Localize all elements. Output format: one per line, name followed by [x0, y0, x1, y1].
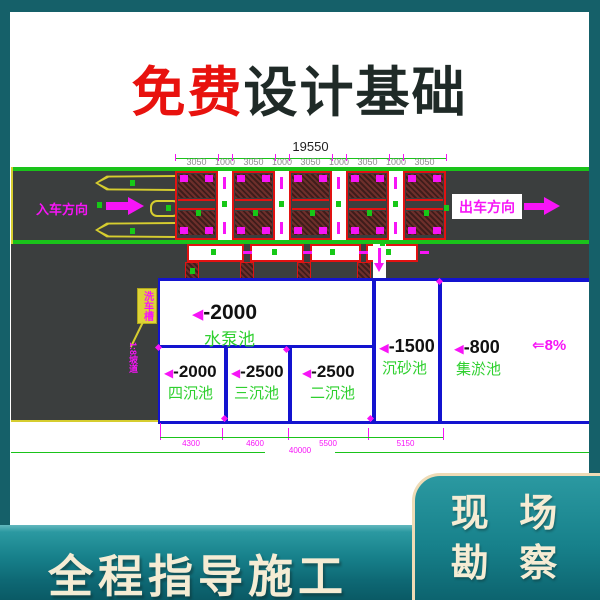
plant-mark	[222, 201, 227, 207]
inlet-arrow	[378, 248, 381, 263]
dim-tick	[288, 428, 289, 440]
bay-mid-strip	[235, 199, 272, 210]
bay-hatch-top	[235, 174, 272, 198]
apron-yellow-edge	[11, 420, 160, 422]
inlet-arrow-head	[374, 263, 384, 272]
bay-gap-channel	[332, 171, 346, 240]
nozzle-mark	[408, 175, 416, 182]
pool-depth: -2500	[240, 362, 283, 381]
bay-mid-strip	[178, 199, 215, 210]
exit-direction-box: 出车方向	[452, 194, 522, 219]
plant-mark	[196, 210, 201, 216]
bay-mid-strip	[349, 199, 386, 210]
drain-channel	[187, 244, 244, 262]
lane-taper-fill	[98, 224, 176, 236]
pool-name: 沉砂池	[379, 357, 438, 378]
bay-gap-channel	[389, 171, 403, 240]
flow-arrow	[243, 251, 252, 254]
dim-tick	[346, 154, 347, 161]
enter-direction-label: 入车方向	[36, 199, 88, 218]
dim-seg-label: 5150	[397, 439, 415, 448]
plant-mark	[380, 240, 385, 246]
depth-marker-icon: ◀	[192, 307, 203, 323]
pool-settle3: ◀-2500 三沉池	[228, 348, 288, 421]
flow-arrow	[359, 251, 368, 254]
title-highlight: 免费	[132, 63, 244, 123]
nozzle-mark	[294, 227, 302, 234]
pool-complex: ◀-2000 水泵池 ◀-2000 四沉池 ◀-2500 三沉池 ◀-2500 …	[158, 278, 589, 424]
site-survey-badge: 现 场 勘 察	[412, 473, 600, 600]
nozzle-mark	[433, 227, 441, 234]
ramp-note: 1:8坡道	[127, 342, 140, 373]
bay-hatch-top	[178, 174, 215, 198]
title-rest: 设计基础	[244, 63, 468, 123]
pool-settle2: ◀-2500 二沉池	[292, 348, 372, 421]
nozzle-mark	[180, 227, 188, 234]
bay-hatch-top	[349, 174, 386, 198]
enter-arrow-head	[128, 197, 144, 215]
plant-mark	[367, 210, 372, 216]
footer-banner-text: 全程指导施工	[48, 540, 348, 600]
plant-mark	[336, 201, 341, 207]
plant-mark	[130, 180, 135, 186]
dimension-line	[160, 437, 443, 438]
pool-settle4: ◀-2000 四沉池	[160, 348, 224, 421]
drain-channel	[250, 244, 304, 262]
plant-mark	[444, 205, 449, 211]
dim-seg-label: 3050	[415, 157, 435, 167]
dim-tick	[289, 154, 290, 161]
nozzle-mark	[376, 227, 384, 234]
flow-arrow	[337, 222, 340, 234]
depth-marker-icon: ◀	[231, 366, 240, 380]
wash-bay-grid	[175, 171, 446, 240]
dim-tick	[175, 154, 176, 161]
dim-seg-label: 3050	[186, 157, 206, 167]
nozzle-mark	[351, 227, 359, 234]
wash-bay	[346, 171, 389, 240]
nozzle-mark	[376, 175, 384, 182]
pool-name: 四沉池	[164, 382, 224, 403]
dim-tick	[222, 428, 223, 440]
pool-name: 集淤池	[454, 358, 589, 379]
ramp-tag: 洗车槽	[137, 288, 157, 324]
overall-dimension-label: 40000	[265, 446, 335, 455]
nozzle-mark	[205, 227, 213, 234]
nozzle-mark	[237, 227, 245, 234]
nozzle-mark	[351, 175, 359, 182]
plant-mark	[97, 202, 102, 208]
plant-mark	[130, 228, 135, 234]
exit-arrow	[524, 203, 544, 210]
dim-seg-label: 3050	[300, 157, 320, 167]
dim-extension	[160, 423, 161, 433]
dim-tick	[443, 428, 444, 440]
nozzle-mark	[262, 227, 270, 234]
bay-mid-strip	[292, 199, 329, 210]
lane-taper-bottom	[95, 222, 178, 238]
pool-sand: ◀-1500 沉砂池	[376, 281, 438, 421]
page-title: 免费设计基础	[10, 66, 589, 120]
exit-direction-label: 出车方向	[459, 197, 515, 217]
flow-arrow	[280, 177, 283, 189]
depth-marker-icon: ◀	[302, 366, 311, 380]
nozzle-mark	[433, 175, 441, 182]
nozzle-mark	[319, 175, 327, 182]
wash-bay	[289, 171, 332, 240]
slope-note: ⇐8%	[532, 336, 566, 354]
nozzle-mark	[294, 175, 302, 182]
flow-arrow	[303, 251, 312, 254]
lane-taper-top	[95, 175, 178, 191]
plant-mark	[330, 249, 335, 255]
exit-arrow-head	[544, 197, 560, 215]
dim-tick	[403, 154, 404, 161]
pool-pump: ◀-2000 水泵池	[160, 281, 372, 345]
pool-sludge: ◀-800 集淤池 ⇐8%	[442, 282, 589, 421]
plant-mark	[393, 201, 398, 207]
wash-bay	[175, 171, 218, 240]
bay-hatch-top	[406, 174, 443, 198]
plant-mark	[386, 249, 391, 255]
drain-channel	[310, 244, 361, 262]
nozzle-mark	[237, 175, 245, 182]
badge-line-1: 现 场	[451, 493, 568, 537]
nozzle-mark	[319, 227, 327, 234]
pool-name: 水泵池	[192, 325, 372, 350]
bay-gap-channel	[275, 171, 289, 240]
plant-mark	[190, 268, 195, 274]
nozzle-mark	[180, 175, 188, 182]
plant-mark	[211, 249, 216, 255]
dim-tick	[232, 154, 233, 161]
nozzle-mark	[262, 175, 270, 182]
nozzle-mark	[408, 227, 416, 234]
flow-arrow	[223, 177, 226, 189]
dim-tick	[368, 428, 369, 440]
bay-gap-channel	[218, 171, 232, 240]
enter-arrow	[106, 202, 128, 210]
plant-mark	[424, 210, 429, 216]
bay-hatch-top	[292, 174, 329, 198]
poster: 免费设计基础 19550 305010003050100030501000305…	[0, 0, 600, 600]
plant-mark	[166, 205, 171, 211]
plant-mark	[310, 210, 315, 216]
plant-mark	[272, 249, 277, 255]
flow-arrow	[280, 222, 283, 234]
bay-mid-strip	[406, 199, 443, 210]
badge-line-2: 勘 察	[451, 543, 568, 587]
flow-arrow	[223, 222, 226, 234]
pool-name: 二沉池	[302, 382, 372, 403]
dim-tick	[446, 154, 447, 161]
pool-depth: -800	[464, 337, 500, 357]
pool-depth: -2500	[311, 362, 354, 381]
pool-depth: -2000	[203, 301, 257, 324]
plant-mark	[253, 210, 258, 216]
wash-bay	[403, 171, 446, 240]
flow-arrow	[394, 222, 397, 234]
dim-seg-label: 4600	[246, 439, 264, 448]
flow-arrow	[394, 177, 397, 189]
ramp-tag-text: 洗车槽	[140, 291, 155, 321]
lane-taper-fill	[98, 177, 176, 189]
flow-arrow	[337, 177, 340, 189]
depth-marker-icon: ◀	[164, 366, 173, 380]
pool-depth: -2000	[173, 362, 216, 381]
wash-bay	[232, 171, 275, 240]
dim-seg-label: 3050	[243, 157, 263, 167]
nozzle-mark	[205, 175, 213, 182]
dim-seg-label: 4300	[182, 439, 200, 448]
pool-depth: -1500	[389, 336, 435, 356]
dim-seg-label: 3050	[357, 157, 377, 167]
plant-mark	[279, 201, 284, 207]
depth-marker-icon: ◀	[454, 342, 464, 356]
pool-name: 三沉池	[231, 382, 288, 403]
depth-marker-icon: ◀	[379, 341, 389, 355]
flow-arrow	[420, 251, 429, 254]
